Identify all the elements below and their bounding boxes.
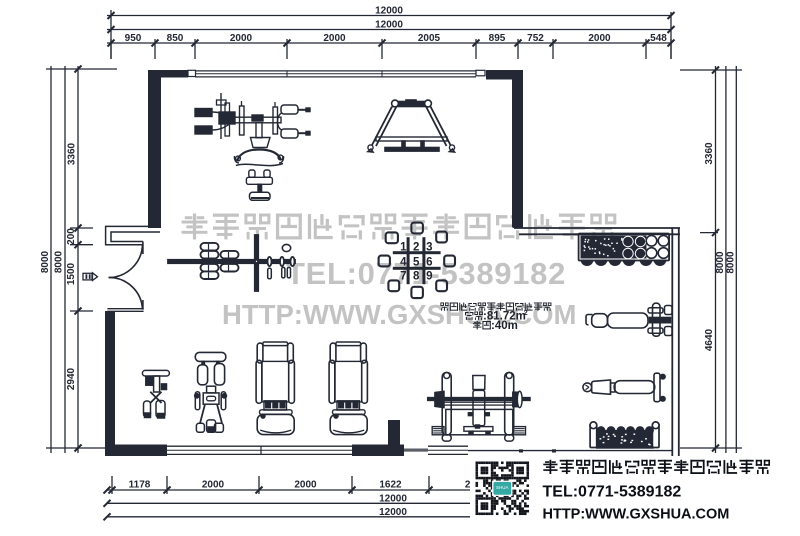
svg-text:TEL:0771-5389182: TEL:0771-5389182 bbox=[543, 484, 682, 501]
svg-text:2000: 2000 bbox=[230, 33, 253, 44]
svg-text:2: 2 bbox=[413, 241, 419, 253]
svg-text:548: 548 bbox=[650, 33, 667, 44]
svg-text:8000: 8000 bbox=[54, 250, 65, 273]
svg-text::40m: :40m bbox=[491, 320, 518, 332]
svg-text:1: 1 bbox=[400, 241, 407, 253]
svg-text:4640: 4640 bbox=[704, 328, 715, 351]
svg-text:7: 7 bbox=[400, 270, 406, 282]
svg-text:1622: 1622 bbox=[379, 480, 402, 491]
svg-text:12000: 12000 bbox=[379, 494, 407, 505]
svg-text:3: 3 bbox=[426, 241, 432, 253]
svg-text:12000: 12000 bbox=[379, 507, 407, 518]
svg-text:752: 752 bbox=[527, 33, 544, 44]
svg-text:2000: 2000 bbox=[202, 480, 225, 491]
svg-text:5: 5 bbox=[413, 257, 420, 269]
svg-text:12000: 12000 bbox=[375, 20, 403, 31]
svg-text:3360: 3360 bbox=[704, 142, 715, 165]
svg-text:1500: 1500 bbox=[66, 262, 77, 285]
svg-text:12000: 12000 bbox=[375, 6, 403, 17]
svg-text:2940: 2940 bbox=[66, 367, 77, 390]
svg-text:SHUA: SHUA bbox=[496, 485, 509, 490]
svg-text:9: 9 bbox=[426, 270, 432, 282]
svg-text:2000: 2000 bbox=[323, 33, 346, 44]
svg-text:2000: 2000 bbox=[294, 480, 317, 491]
svg-text:4: 4 bbox=[400, 257, 407, 269]
svg-text:HTTP:WWW.GXSHUA.COM: HTTP:WWW.GXSHUA.COM bbox=[543, 507, 730, 523]
svg-text:8000: 8000 bbox=[40, 250, 51, 273]
svg-text:8000: 8000 bbox=[715, 251, 726, 274]
svg-text:200: 200 bbox=[66, 228, 77, 245]
svg-text:1178: 1178 bbox=[129, 480, 151, 491]
svg-text:950: 950 bbox=[125, 33, 142, 44]
svg-text:2005: 2005 bbox=[418, 33, 441, 44]
svg-text:895: 895 bbox=[489, 33, 506, 44]
svg-text:6: 6 bbox=[426, 257, 432, 269]
svg-text:8000: 8000 bbox=[725, 251, 736, 274]
svg-text:2: 2 bbox=[524, 308, 528, 317]
svg-text:8: 8 bbox=[413, 270, 420, 282]
svg-text:3360: 3360 bbox=[67, 142, 78, 165]
svg-text:2000: 2000 bbox=[588, 33, 611, 44]
svg-text:850: 850 bbox=[167, 33, 184, 44]
